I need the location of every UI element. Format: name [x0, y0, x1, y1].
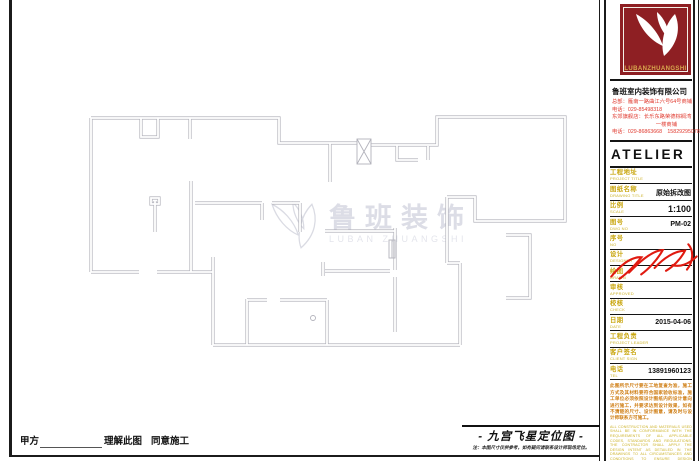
party-a-signature-line — [40, 447, 102, 448]
label-cn: 序号 — [610, 235, 692, 242]
title-block: LUBANZHUANGSHI 鲁班室内装饰有限公司 总部：雁南一路曲江六号64号… — [610, 0, 692, 461]
company-info: 鲁班室内装饰有限公司 总部：雁南一路曲江六号64号商铺 电话：029-85498… — [610, 81, 692, 140]
row-no: 序号 NO — [610, 233, 692, 249]
row-project-title: 工程地址 PROJECT TITLE — [610, 168, 692, 184]
floor-plan — [0, 0, 700, 461]
party-a-label: 甲方 — [20, 433, 39, 447]
row-scale: 比例 SCALE 1:100 — [610, 201, 692, 217]
label-en: NO — [610, 242, 692, 247]
label-en: PROJECT LEADER — [610, 340, 692, 345]
row-approved: 审核 APPROVED — [610, 282, 692, 298]
fengshui-title: - 九宫飞星定位图 - — [462, 428, 600, 444]
row-check: 校核 CHECK — [610, 299, 692, 315]
row-designer: 设计 DESIGNER — [610, 250, 692, 266]
fengshui-caption: - 九宫飞星定位图 - 注：本图尺寸仅供参考，如有疑问请联系设计师现场定位。 — [462, 425, 600, 451]
row-date: 日期 DATE 2015-04-06 — [610, 315, 692, 331]
row-client-sign: 客户签名 CLIENT SIGN — [610, 348, 692, 364]
fengshui-note: 注：本图尺寸仅供参考，如有疑问请联系设计师现场定位。 — [462, 445, 600, 451]
row-tel: 电话 TEL 13891960123 — [610, 364, 692, 380]
label-cn: 绘图 — [610, 268, 692, 275]
atelier-heading: ATELIER — [610, 142, 692, 166]
row-project-leader: 工程负责 PROJECT LEADER — [610, 331, 692, 347]
approval-strip: 甲方 理解此图 同意施工 — [0, 431, 420, 451]
label-cn: 工程负责 — [610, 333, 692, 340]
company-hq-address: 总部：雁南一路曲江六号64号商铺 — [612, 99, 691, 107]
row-dwg-no: 图号 DWG NO PM-02 — [610, 217, 692, 233]
label-en: CLIENT SIGN — [610, 356, 692, 361]
disclaimer-cn: 此图所示尺寸要在工地复查为准，施工方式及其材料要符合国家验收标准，施工单位必须依… — [610, 383, 692, 421]
drain-symbol — [311, 316, 316, 321]
value: PM-02 — [670, 221, 691, 228]
value: 2015-04-06 — [655, 319, 691, 326]
label-cn: 工程地址 — [610, 169, 692, 176]
disclaimer-en: ALL CONSTRUCTION AND MATERIALS USED SHAL… — [610, 425, 692, 461]
company-logo: LUBANZHUANGSHI — [620, 4, 691, 75]
label-cn: 审核 — [610, 284, 692, 291]
label-en: PROJECT TITLE — [610, 176, 692, 181]
label-en: DESIGNER — [610, 258, 692, 263]
logo-leaf-icon — [620, 6, 691, 64]
label-en: CHECK — [610, 307, 692, 312]
row-drawing-title: 图纸名称 DRAWING TITLE 原始拆改图 — [610, 184, 692, 200]
label-cn: 客户签名 — [610, 349, 692, 356]
row-drawn: 绘图 DRAWN — [610, 266, 692, 282]
label-cn: 设计 — [610, 251, 692, 258]
company-branch-address: 东郊旗舰店：长乐东路荣德棕榈湾 — [612, 114, 691, 122]
fengshui-top-rule — [462, 425, 600, 427]
company-branch-phone: 电话：029-86863668 15829295078 — [612, 129, 691, 137]
value: 原始拆改图 — [656, 188, 691, 198]
value: 1:100 — [668, 204, 691, 214]
drawing-sheet: 鲁班装饰 LUBAN ZHUANGSHI 甲方 理解此图 同意施工 - 九宫飞 — [0, 0, 700, 461]
label-en: DRAWN — [610, 275, 692, 280]
label-cn: 校核 — [610, 300, 692, 307]
logo-wordmark: LUBANZHUANGSHI — [620, 66, 691, 72]
agree-label: 同意施工 — [151, 433, 189, 447]
label-en: APPROVED — [610, 291, 692, 296]
understand-label: 理解此图 — [104, 433, 142, 447]
value: 13891960123 — [648, 368, 691, 375]
company-name: 鲁班室内装饰有限公司 — [612, 86, 691, 97]
